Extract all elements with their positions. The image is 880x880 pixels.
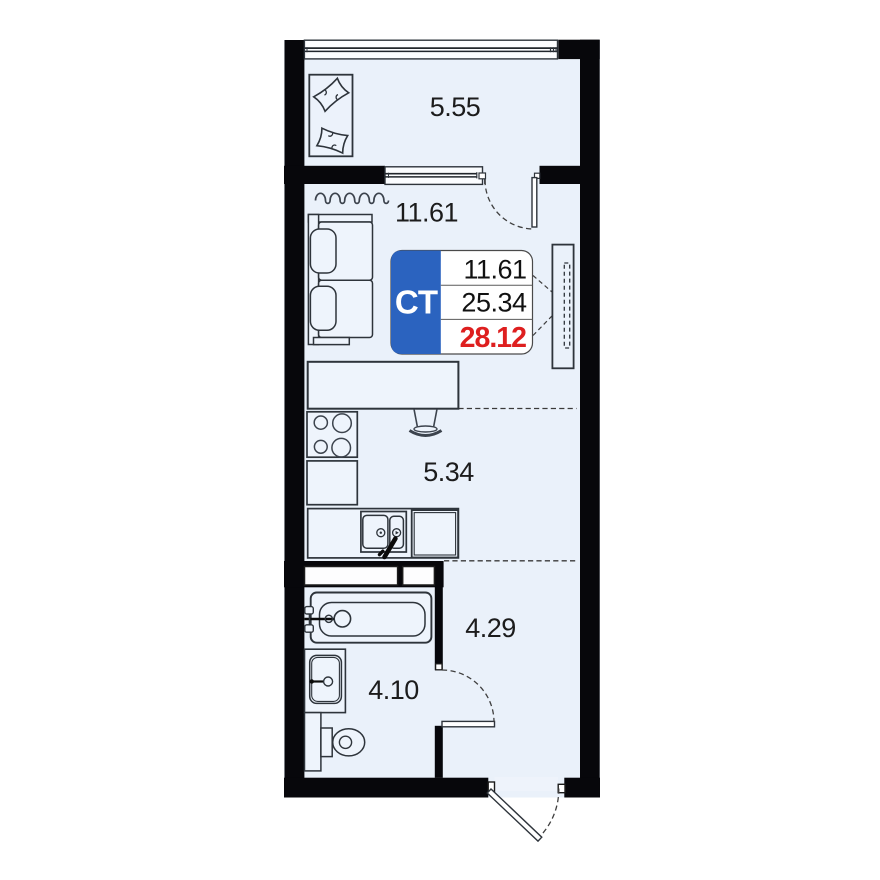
- svg-text:25.34: 25.34: [461, 288, 527, 318]
- svg-text:5.34: 5.34: [423, 457, 474, 487]
- svg-text:28.12: 28.12: [460, 322, 526, 354]
- svg-text:11.61: 11.61: [463, 255, 526, 285]
- svg-text:11.61: 11.61: [395, 198, 458, 228]
- svg-text:4.29: 4.29: [465, 613, 516, 643]
- svg-text:СТ: СТ: [395, 284, 438, 321]
- svg-text:5.55: 5.55: [430, 92, 481, 122]
- svg-text:4.10: 4.10: [368, 675, 419, 705]
